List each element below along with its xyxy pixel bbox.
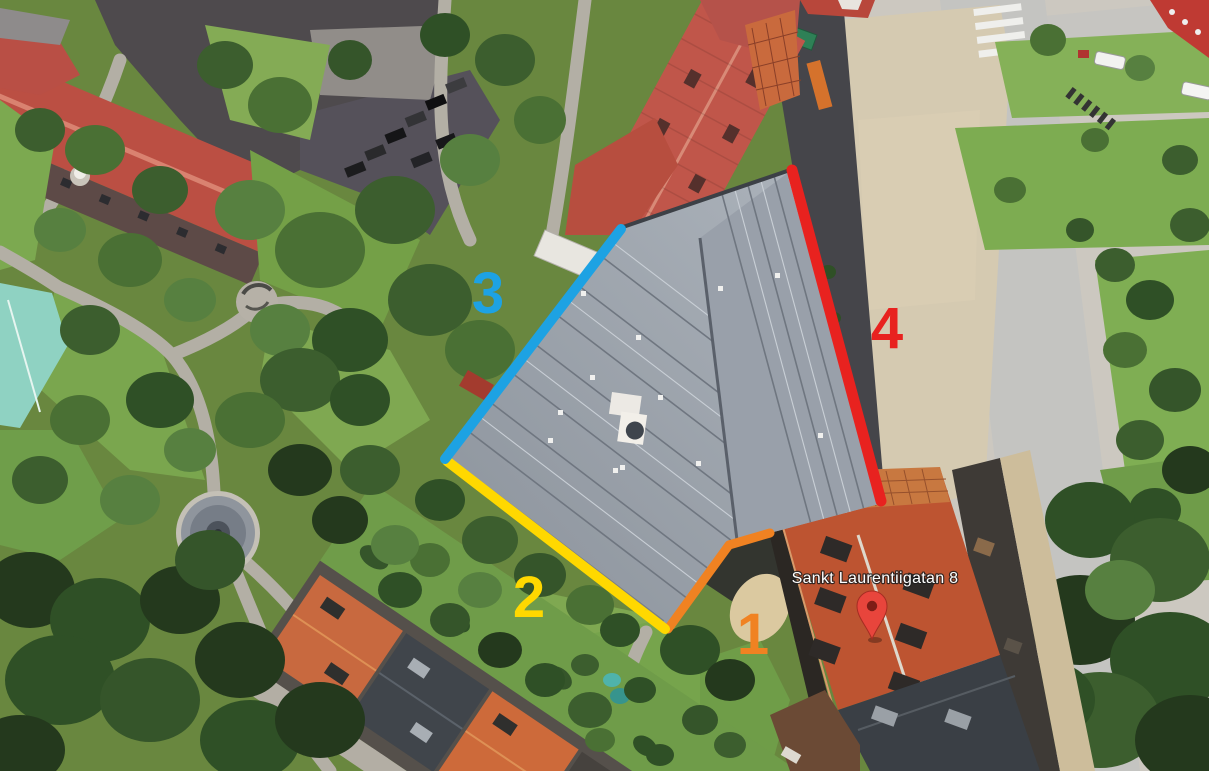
- satellite-imagery: [0, 0, 1209, 771]
- annotation-number-1: 1: [737, 602, 769, 667]
- garden-pool: [603, 673, 621, 687]
- annotation-number-3: 3: [472, 261, 504, 326]
- address-label[interactable]: Sankt Laurentiigatan 8: [792, 570, 959, 587]
- annotation-number-4: 4: [871, 296, 903, 361]
- map-pin-dot: [867, 601, 877, 611]
- pin-shadow: [868, 637, 882, 643]
- annotation-number-2: 2: [513, 565, 545, 630]
- map-canvas[interactable]: 1234 Sankt Laurentiigatan 8: [0, 0, 1209, 771]
